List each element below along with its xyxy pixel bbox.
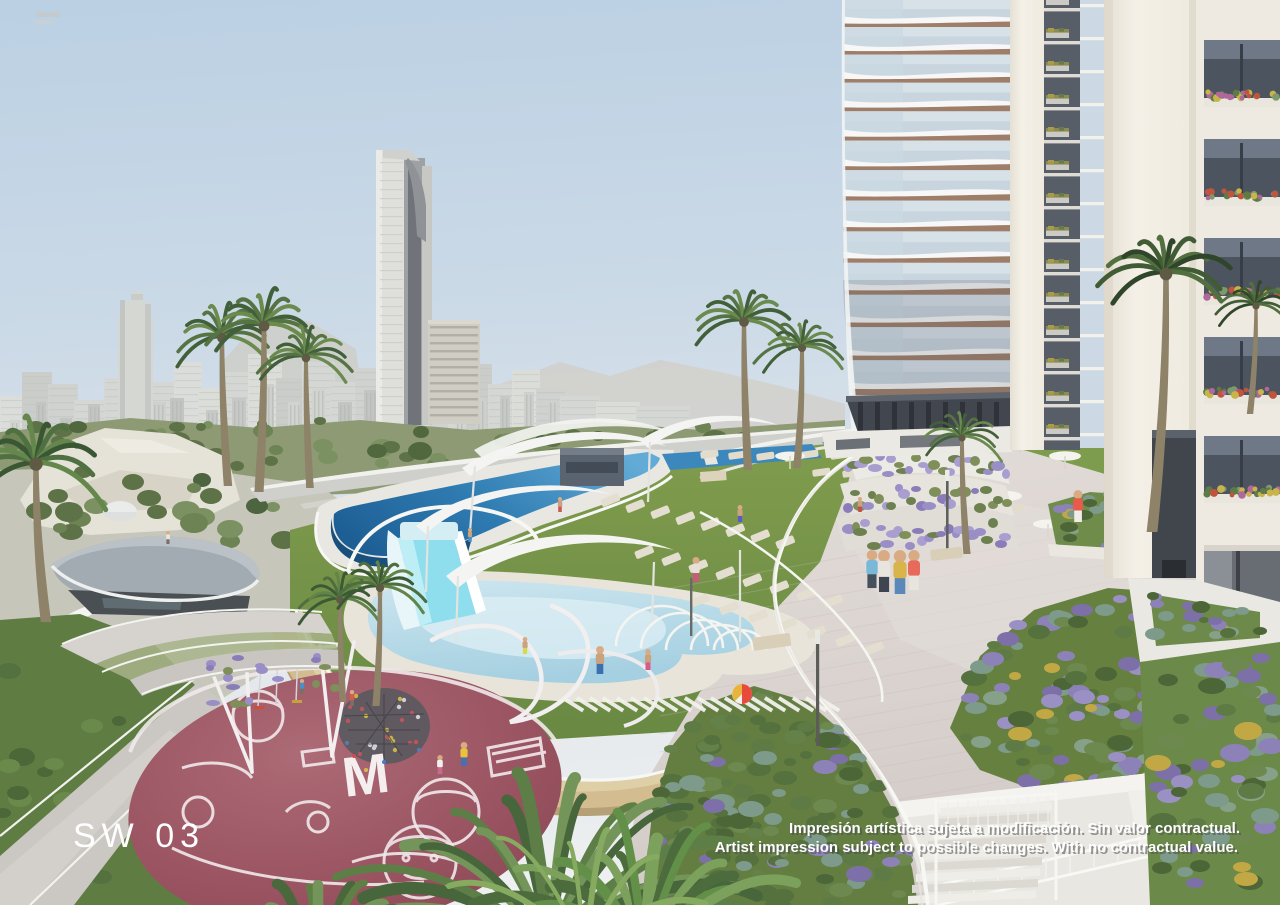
- svg-text:Artist impression subject to p: Artist impression subject to possible ch…: [715, 839, 1238, 856]
- svg-text:M: M: [339, 741, 393, 809]
- svg-text:Impresión artística sujeta a m: Impresión artística sujeta a modificació…: [789, 820, 1240, 837]
- svg-text:SW 03: SW 03: [73, 817, 205, 855]
